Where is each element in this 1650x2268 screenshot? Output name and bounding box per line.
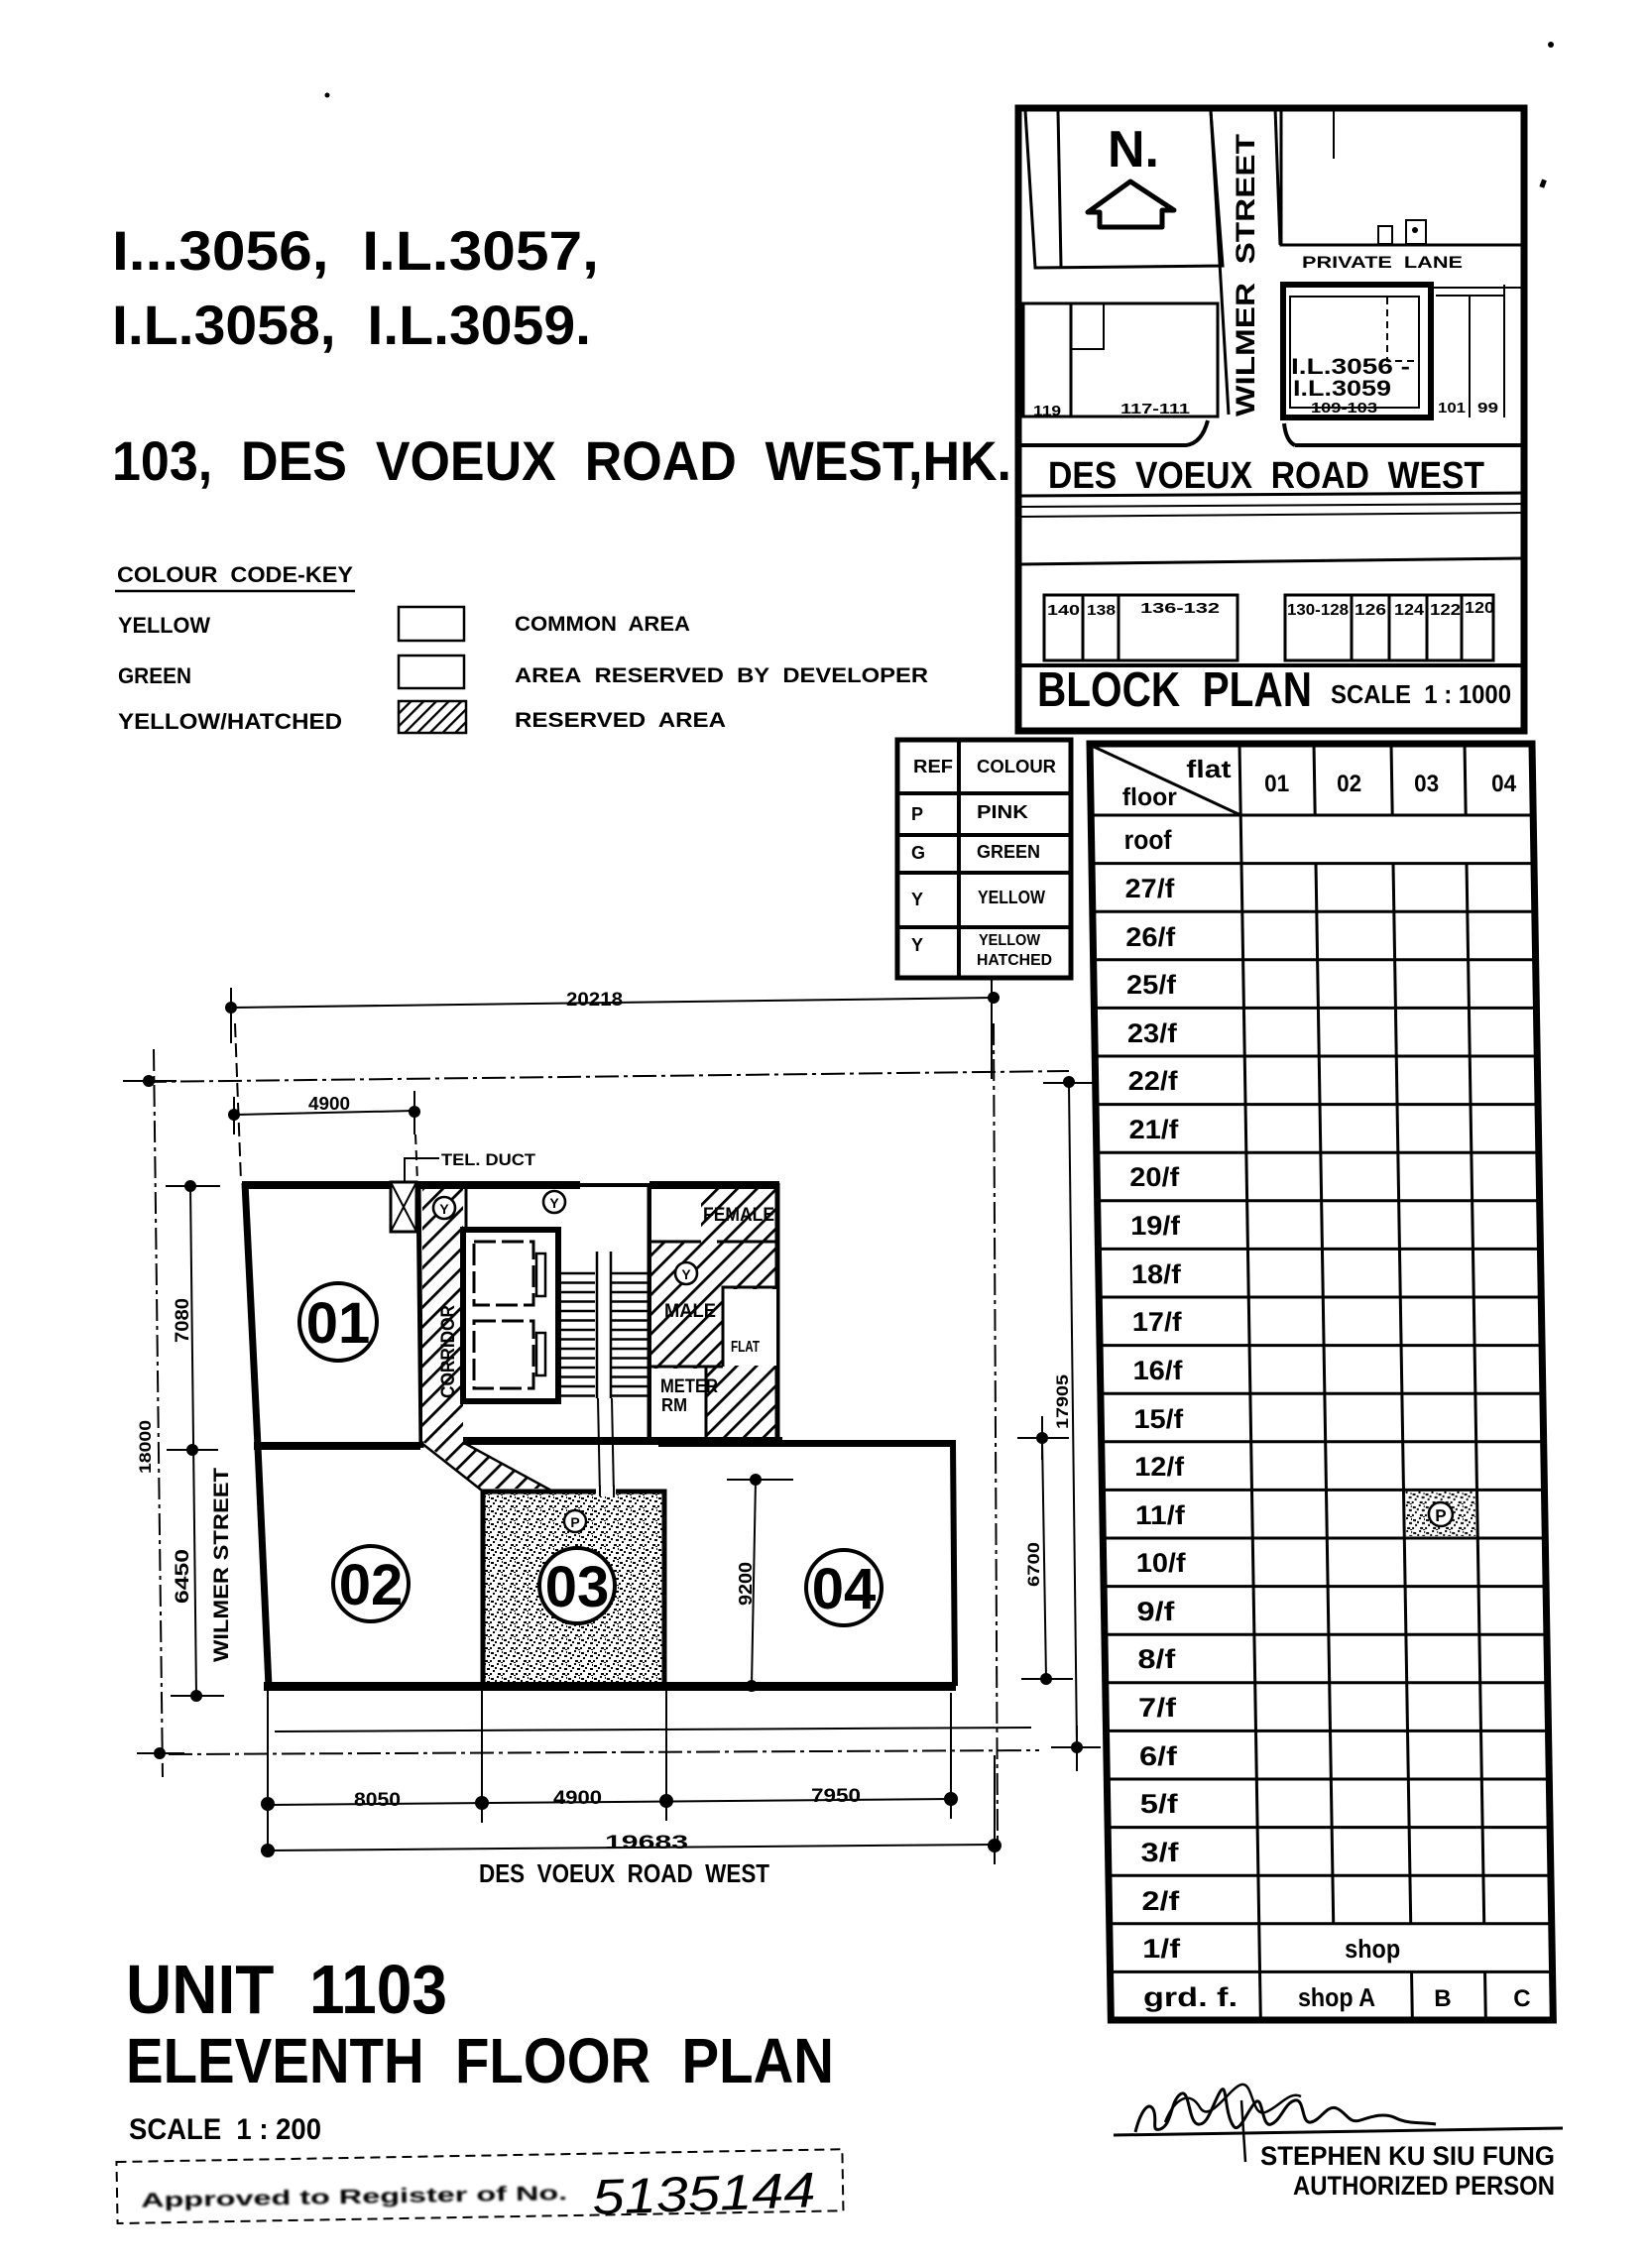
svg-text:103, DES VOEUX ROAD WEST,H: 103, DES VOEUX ROAD WEST,HK. bbox=[112, 429, 1011, 492]
svg-text:YELLOW: YELLOW bbox=[979, 932, 1041, 949]
svg-text:17/f: 17/f bbox=[1131, 1307, 1183, 1337]
svg-text:WILMER STREET: WILMER STREET bbox=[1231, 133, 1260, 417]
svg-text:SCALE 1 : 200: SCALE 1 : 200 bbox=[129, 2113, 321, 2146]
svg-text:shop A: shop A bbox=[1298, 1982, 1376, 2012]
svg-text:Y: Y bbox=[439, 1201, 449, 1217]
svg-text:CORRIDOR: CORRIDOR bbox=[438, 1305, 459, 1398]
svg-text:YELLOW: YELLOW bbox=[118, 613, 210, 638]
svg-text:20218: 20218 bbox=[566, 990, 623, 1011]
svg-text:8/f: 8/f bbox=[1137, 1644, 1177, 1674]
svg-text:UNIT 1103: UNIT 1103 bbox=[126, 1951, 447, 2028]
svg-text:16/f: 16/f bbox=[1132, 1356, 1184, 1385]
svg-text:01: 01 bbox=[1264, 771, 1289, 797]
svg-text:4900: 4900 bbox=[553, 1788, 602, 1809]
svg-text:117-111: 117-111 bbox=[1120, 401, 1190, 418]
svg-text:126: 126 bbox=[1355, 602, 1386, 619]
svg-text:5135144: 5135144 bbox=[591, 2162, 816, 2225]
svg-text:AREA RESERVED BY DEVELOPER: AREA RESERVED BY DEVELOPER bbox=[515, 664, 928, 687]
svg-text:METER: METER bbox=[660, 1376, 718, 1397]
svg-text:15/f: 15/f bbox=[1133, 1404, 1185, 1434]
svg-text:ELEVENTH FLOOR PLAN: ELEVENTH FLOOR PLAN bbox=[126, 2025, 834, 2096]
svg-text:7/f: 7/f bbox=[1138, 1693, 1178, 1723]
svg-text:GREEN: GREEN bbox=[977, 842, 1040, 862]
svg-text:Y: Y bbox=[911, 890, 923, 909]
svg-text:4900: 4900 bbox=[308, 1094, 350, 1114]
svg-text:04: 04 bbox=[812, 1557, 877, 1621]
svg-text:GREEN: GREEN bbox=[118, 663, 191, 688]
svg-text:02: 02 bbox=[1337, 771, 1361, 797]
svg-text:04: 04 bbox=[1491, 771, 1517, 797]
svg-text:WILMER STREET: WILMER STREET bbox=[210, 1468, 233, 1662]
svg-text:C: C bbox=[1513, 1985, 1531, 2012]
svg-text:109-103: 109-103 bbox=[1311, 400, 1377, 417]
svg-text:COLOUR: COLOUR bbox=[977, 757, 1056, 776]
svg-text:101: 101 bbox=[1438, 400, 1466, 417]
svg-text:119: 119 bbox=[1033, 403, 1061, 419]
svg-text:136-132: 136-132 bbox=[1140, 600, 1220, 617]
svg-text:REF: REF bbox=[913, 757, 953, 776]
svg-text:03: 03 bbox=[545, 1555, 610, 1619]
svg-text:B: B bbox=[1434, 1985, 1452, 2012]
svg-text:Y: Y bbox=[911, 935, 923, 955]
svg-text:AUTHORIZED PERSON: AUTHORIZED PERSON bbox=[1293, 2171, 1555, 2201]
svg-text:124: 124 bbox=[1394, 602, 1424, 619]
svg-text:120: 120 bbox=[1465, 600, 1494, 617]
svg-text:21/f: 21/f bbox=[1128, 1115, 1180, 1144]
svg-text:flat: flat bbox=[1186, 756, 1232, 783]
svg-text:roof: roof bbox=[1123, 825, 1172, 855]
svg-text:17905: 17905 bbox=[1053, 1374, 1072, 1429]
svg-text:27/f: 27/f bbox=[1124, 874, 1176, 903]
svg-text:shop: shop bbox=[1345, 1934, 1400, 1964]
svg-text:P: P bbox=[570, 1514, 579, 1530]
svg-text:18000: 18000 bbox=[136, 1420, 155, 1474]
svg-text:11/f: 11/f bbox=[1135, 1500, 1187, 1530]
svg-text:COLOUR CODE-KEY: COLOUR CODE-KEY bbox=[117, 562, 353, 587]
svg-text:TEL. DUCT: TEL. DUCT bbox=[441, 1150, 536, 1169]
svg-text:I.L.3058, I.L.3059.: I.L.3058, I.L.3059. bbox=[112, 294, 591, 356]
svg-text:19/f: 19/f bbox=[1130, 1211, 1182, 1241]
svg-text:9200: 9200 bbox=[736, 1562, 756, 1606]
svg-text:10/f: 10/f bbox=[1135, 1548, 1187, 1578]
svg-text:130-128: 130-128 bbox=[1287, 602, 1349, 619]
svg-text:N.: N. bbox=[1108, 121, 1159, 179]
svg-text:02: 02 bbox=[339, 1553, 404, 1617]
svg-text:floor: floor bbox=[1122, 783, 1178, 811]
svg-text:HATCHED: HATCHED bbox=[977, 952, 1052, 969]
svg-text:12/f: 12/f bbox=[1134, 1452, 1186, 1482]
svg-text:1/f: 1/f bbox=[1142, 1934, 1182, 1964]
svg-text:SCALE 1 : 1000: SCALE 1 : 1000 bbox=[1331, 679, 1511, 709]
svg-text:19683: 19683 bbox=[605, 1833, 688, 1853]
svg-text:YELLOW: YELLOW bbox=[978, 888, 1045, 907]
svg-text:PRIVATE LANE: PRIVATE LANE bbox=[1302, 253, 1463, 272]
svg-text:P: P bbox=[1435, 1506, 1447, 1525]
svg-text:7080: 7080 bbox=[173, 1298, 193, 1343]
svg-text:6450: 6450 bbox=[173, 1549, 193, 1604]
svg-text:26/f: 26/f bbox=[1125, 922, 1177, 952]
svg-text:RM: RM bbox=[661, 1395, 687, 1415]
svg-text:PINK: PINK bbox=[977, 802, 1028, 822]
svg-text:STEPHEN KU SIU FUNG: STEPHEN KU SIU FUNG bbox=[1260, 2141, 1555, 2171]
svg-text:FEMALE: FEMALE bbox=[703, 1205, 774, 1226]
svg-text:Y: Y bbox=[549, 1195, 559, 1211]
svg-text:BLOCK PLAN: BLOCK PLAN bbox=[1037, 663, 1312, 717]
svg-text:9/f: 9/f bbox=[1136, 1597, 1176, 1626]
svg-text:138: 138 bbox=[1087, 602, 1116, 619]
svg-text:RESERVED AREA: RESERVED AREA bbox=[515, 709, 726, 732]
svg-text:03: 03 bbox=[1414, 771, 1439, 797]
svg-text:140: 140 bbox=[1047, 602, 1080, 619]
svg-text:20/f: 20/f bbox=[1129, 1162, 1181, 1192]
svg-text:7950: 7950 bbox=[811, 1786, 861, 1807]
svg-text:I.L.3059: I.L.3059 bbox=[1293, 376, 1391, 401]
svg-text:23/f: 23/f bbox=[1127, 1018, 1179, 1048]
svg-text:01: 01 bbox=[306, 1291, 371, 1356]
svg-text:22/f: 22/f bbox=[1127, 1066, 1179, 1096]
svg-text:P: P bbox=[911, 804, 923, 824]
svg-text:8050: 8050 bbox=[354, 1790, 401, 1811]
svg-text:G: G bbox=[911, 843, 925, 863]
svg-text:DES VOEUX ROAD WEST: DES VOEUX ROAD WEST bbox=[479, 1858, 769, 1888]
svg-text:6/f: 6/f bbox=[1139, 1741, 1179, 1771]
svg-text:2/f: 2/f bbox=[1141, 1886, 1181, 1916]
svg-text:COMMON AREA: COMMON AREA bbox=[515, 613, 690, 636]
svg-text:Y: Y bbox=[681, 1266, 691, 1282]
svg-text:25/f: 25/f bbox=[1126, 970, 1178, 1000]
svg-text:YELLOW/HATCHED: YELLOW/HATCHED bbox=[118, 709, 342, 734]
svg-text:18/f: 18/f bbox=[1131, 1259, 1183, 1289]
svg-text:I...3056, I.L.3057,: I...3056, I.L.3057, bbox=[112, 219, 599, 282]
svg-text:MALE: MALE bbox=[664, 1301, 716, 1322]
svg-text:122: 122 bbox=[1430, 602, 1461, 619]
svg-text:FLAT: FLAT bbox=[731, 1339, 760, 1356]
svg-text:6700: 6700 bbox=[1024, 1542, 1043, 1587]
svg-text:5/f: 5/f bbox=[1139, 1789, 1179, 1819]
svg-text:99: 99 bbox=[1477, 400, 1498, 417]
svg-text:DES VOEUX ROAD WEST: DES VOEUX ROAD WEST bbox=[1048, 455, 1484, 497]
svg-text:grd. f.: grd. f. bbox=[1143, 1982, 1237, 2012]
svg-text:3/f: 3/f bbox=[1140, 1838, 1180, 1867]
